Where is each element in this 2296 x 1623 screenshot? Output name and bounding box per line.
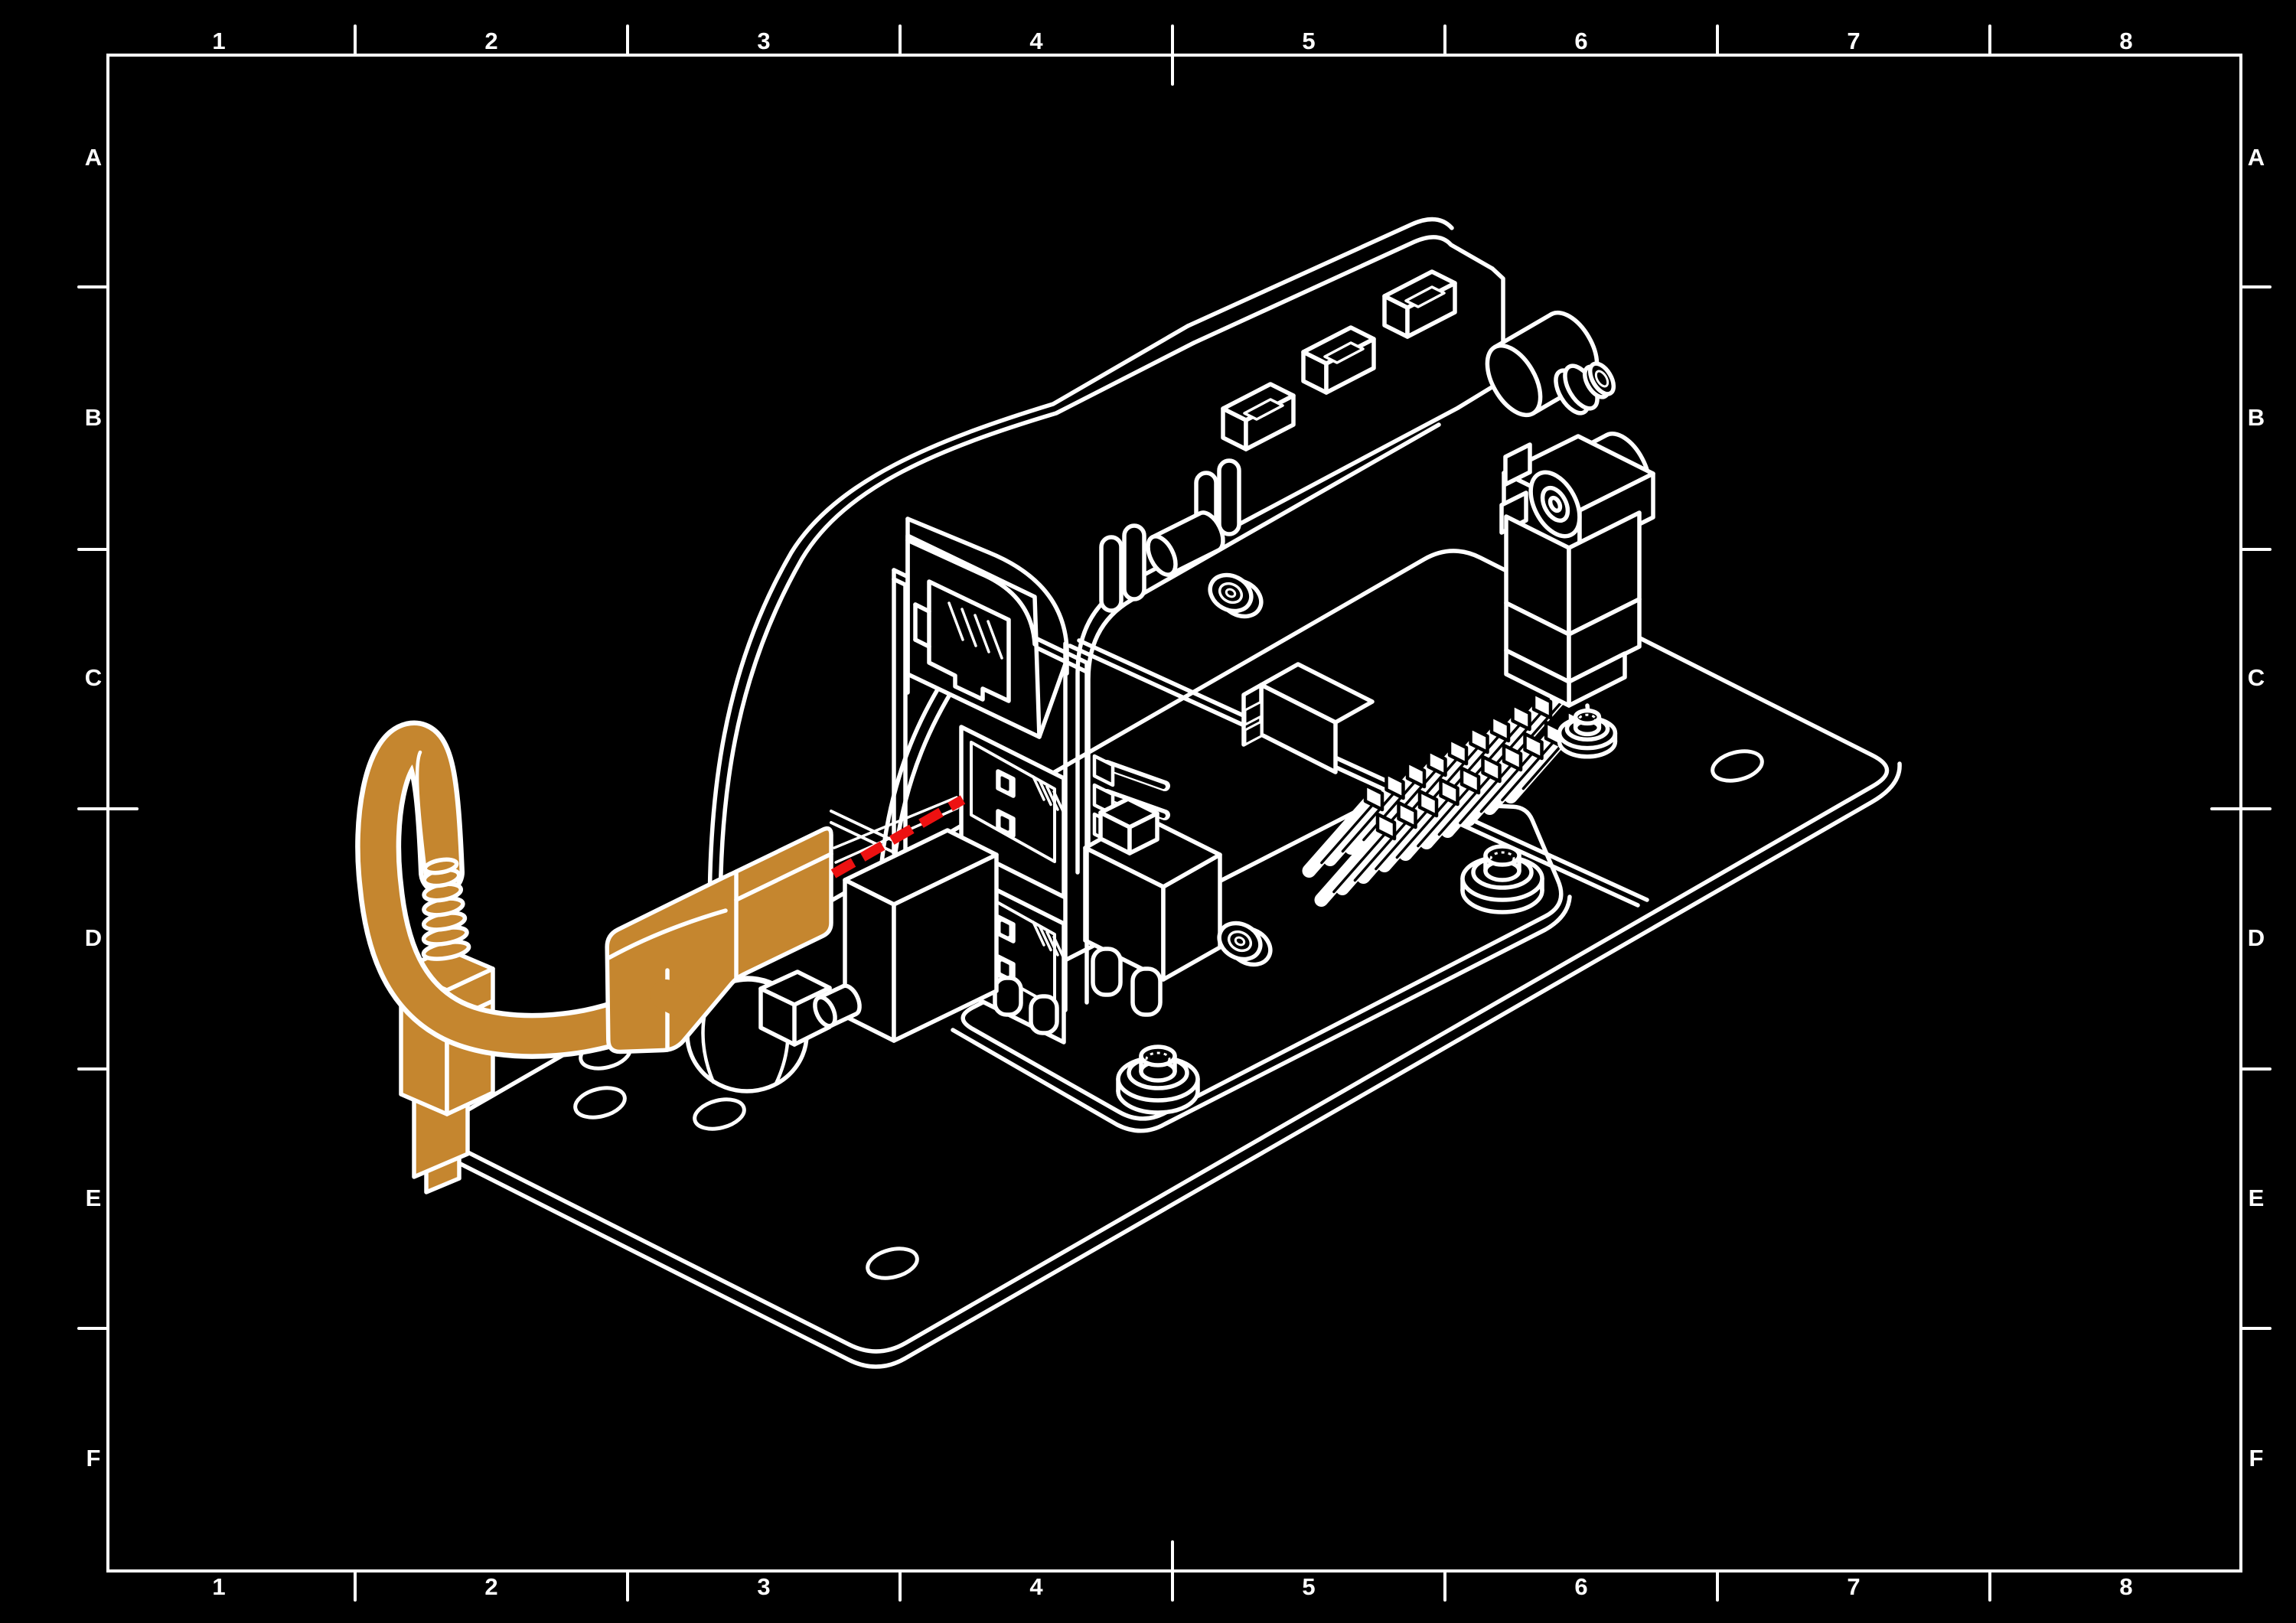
svg-text:E: E: [2249, 1185, 2265, 1211]
svg-text:A: A: [85, 144, 102, 171]
svg-text:8: 8: [2119, 1573, 2132, 1600]
svg-text:5: 5: [1302, 28, 1315, 54]
svg-text:2: 2: [484, 1573, 497, 1600]
svg-text:B: B: [2248, 404, 2265, 431]
svg-text:3: 3: [757, 1573, 770, 1600]
svg-text:7: 7: [1847, 28, 1860, 54]
svg-text:1: 1: [212, 28, 225, 54]
svg-text:5: 5: [1302, 1573, 1315, 1600]
svg-text:C: C: [85, 664, 102, 691]
svg-text:E: E: [86, 1185, 102, 1211]
svg-text:F: F: [2249, 1445, 2264, 1471]
svg-text:8: 8: [2119, 28, 2132, 54]
svg-text:4: 4: [1029, 28, 1043, 54]
svg-text:C: C: [2248, 664, 2265, 691]
svg-text:7: 7: [1847, 1573, 1860, 1600]
svg-text:F: F: [86, 1445, 101, 1471]
svg-text:3: 3: [757, 28, 770, 54]
svg-text:6: 6: [1574, 1573, 1587, 1600]
svg-text:6: 6: [1574, 28, 1587, 54]
svg-text:A: A: [2248, 144, 2265, 171]
svg-text:4: 4: [1029, 1573, 1043, 1600]
svg-text:D: D: [85, 924, 102, 951]
svg-text:2: 2: [484, 28, 497, 54]
svg-text:B: B: [85, 404, 102, 431]
svg-text:D: D: [2248, 924, 2265, 951]
svg-text:1: 1: [212, 1573, 225, 1600]
